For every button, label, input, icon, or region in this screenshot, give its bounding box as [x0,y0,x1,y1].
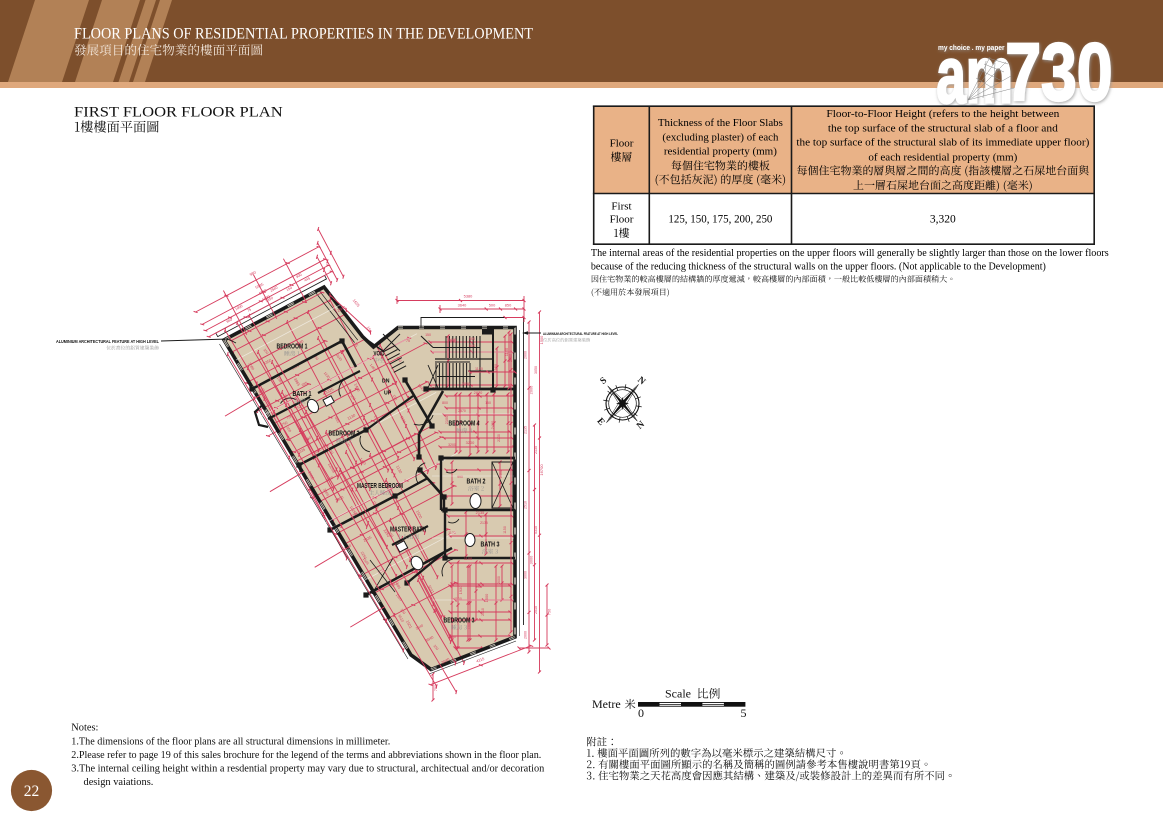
svg-text:3200: 3200 [448,443,456,447]
svg-text:(excluding plaster) of each: (excluding plaster) of each [662,131,778,143]
svg-text:N: N [635,420,647,432]
svg-text:2135: 2135 [524,426,528,434]
svg-text:150: 150 [366,325,374,334]
svg-text:BEDROOM 4: BEDROOM 4 [449,421,480,428]
svg-text:4115: 4115 [475,656,485,664]
svg-text:MASTER BATH: MASTER BATH [390,527,426,534]
svg-text:125, 150, 175, 200, 250: 125, 150, 175, 200, 250 [668,214,772,226]
svg-text:75: 75 [247,308,252,313]
svg-text:1500: 1500 [539,335,544,344]
svg-text:3000: 3000 [529,555,534,564]
svg-text:2.Please refer to page 19 of t: 2.Please refer to page 19 of this sales … [71,750,541,761]
svg-text:150: 150 [485,401,491,405]
svg-text:800: 800 [442,401,448,405]
svg-text:2000: 2000 [497,576,501,584]
svg-text:1.The dimensions of the floor: 1.The dimensions of the floor plans are … [71,737,390,748]
svg-text:2000: 2000 [529,385,534,394]
svg-text:The internal areas of the resi: The internal areas of the residential pr… [591,247,1109,259]
svg-text:3200: 3200 [466,440,475,445]
svg-text:850: 850 [505,303,512,308]
svg-text:BEDROOM 2: BEDROOM 2 [329,431,360,438]
svg-text:750: 750 [434,685,438,691]
svg-text:1100: 1100 [464,556,473,561]
svg-text:1500: 1500 [484,593,489,602]
svg-text:980: 980 [249,269,258,277]
svg-text:Notes:: Notes: [71,723,98,734]
svg-text:2135: 2135 [480,521,488,525]
svg-text:3050: 3050 [534,366,538,374]
svg-text:1120: 1120 [475,367,483,371]
svg-text:1930: 1930 [458,585,463,594]
svg-text:BEDROOM 3: BEDROOM 3 [444,617,475,624]
svg-text:FLOOR PLANS OF RESIDENTIAL PRO: FLOOR PLANS OF RESIDENTIAL PROPERTIES IN… [74,26,533,43]
svg-text:ALUMINIUM ARCHITECTURAL FEATUR: ALUMINIUM ARCHITECTURAL FEATURE AT HIGH … [56,339,159,344]
svg-text:3640: 3640 [458,303,467,308]
svg-text:DN: DN [382,379,390,385]
svg-text:3000: 3000 [524,571,528,579]
svg-text:2400: 2400 [499,470,503,478]
svg-text:2440: 2440 [448,338,456,342]
svg-text:design vaiations.: design vaiations. [84,777,154,788]
svg-text:2000: 2000 [524,351,528,359]
svg-text:Floor: Floor [610,137,634,149]
svg-text:1625: 1625 [352,298,361,308]
svg-text:730: 730 [1005,27,1112,118]
svg-text:800: 800 [469,337,475,341]
svg-text:BATH 3: BATH 3 [481,542,500,549]
svg-text:2580: 2580 [269,286,278,293]
svg-text:VOID: VOID [374,351,385,358]
svg-text:2135: 2135 [476,510,485,515]
svg-text:Thickness of the Floor Slabs: Thickness of the Floor Slabs [658,117,783,129]
svg-text:3.The internal ceiling height: 3.The internal ceiling height within a r… [71,764,545,775]
svg-text:1150: 1150 [493,363,498,372]
svg-text:the top surface of the structu: the top surface of the structural slab o… [796,137,1089,149]
svg-text:BATH 1: BATH 1 [293,391,312,398]
svg-text:ALUMINIUM ARCHITECTURAL FEATUR: ALUMINIUM ARCHITECTURAL FEATURE AT HIGH … [543,331,618,336]
svg-text:445: 445 [304,276,311,282]
svg-text:MASTER BEDROOM: MASTER BEDROOM [357,483,403,490]
svg-text:1150: 1150 [503,526,507,534]
svg-text:0: 0 [638,706,644,720]
svg-text:S: S [599,376,609,387]
svg-text:900: 900 [295,273,302,279]
svg-text:1100: 1100 [454,597,462,601]
svg-text:BATH 2: BATH 2 [467,479,486,486]
svg-text:3000: 3000 [462,381,471,386]
svg-text:of each residential property (: of each residential property (mm) [868,152,1017,164]
svg-text:2000: 2000 [524,631,528,639]
svg-text:UP: UP [384,391,392,397]
svg-text:1000: 1000 [234,304,243,311]
svg-text:residential property (mm): residential property (mm) [664,146,777,158]
svg-text:2400: 2400 [490,420,495,429]
svg-text:150: 150 [286,286,293,292]
svg-text:22: 22 [24,783,40,800]
svg-text:2870: 2870 [458,409,466,413]
svg-text:Floor-to-Floor Height (refers: Floor-to-Floor Height (refers to the hei… [826,108,1060,120]
svg-text:5: 5 [741,706,747,720]
svg-text:Metre: Metre [592,697,621,711]
svg-text:2510: 2510 [524,501,528,509]
svg-text:Scale: Scale [665,687,691,701]
svg-text:1120: 1120 [448,531,456,535]
svg-text:750: 750 [547,608,552,615]
svg-text:BEDROOM 1: BEDROOM 1 [277,344,308,351]
svg-text:5380: 5380 [464,294,473,299]
svg-text:the top surface of the structu: the top surface of the structural slab o… [828,122,1059,134]
svg-text:500: 500 [489,303,496,308]
svg-text:because of the reducing thickn: because of the reducing thickness of the… [591,260,1046,272]
svg-text:800: 800 [469,343,476,348]
svg-text:2870: 2870 [474,390,483,395]
svg-text:Floor: Floor [610,214,634,226]
svg-text:16700: 16700 [539,464,544,476]
svg-text:150: 150 [425,333,431,337]
svg-text:E: E [594,416,606,427]
svg-text:FIRST FLOOR FLOOR PLAN: FIRST FLOOR FLOOR PLAN [74,104,283,120]
svg-text:First: First [611,200,631,212]
svg-text:3,320: 3,320 [930,214,956,226]
